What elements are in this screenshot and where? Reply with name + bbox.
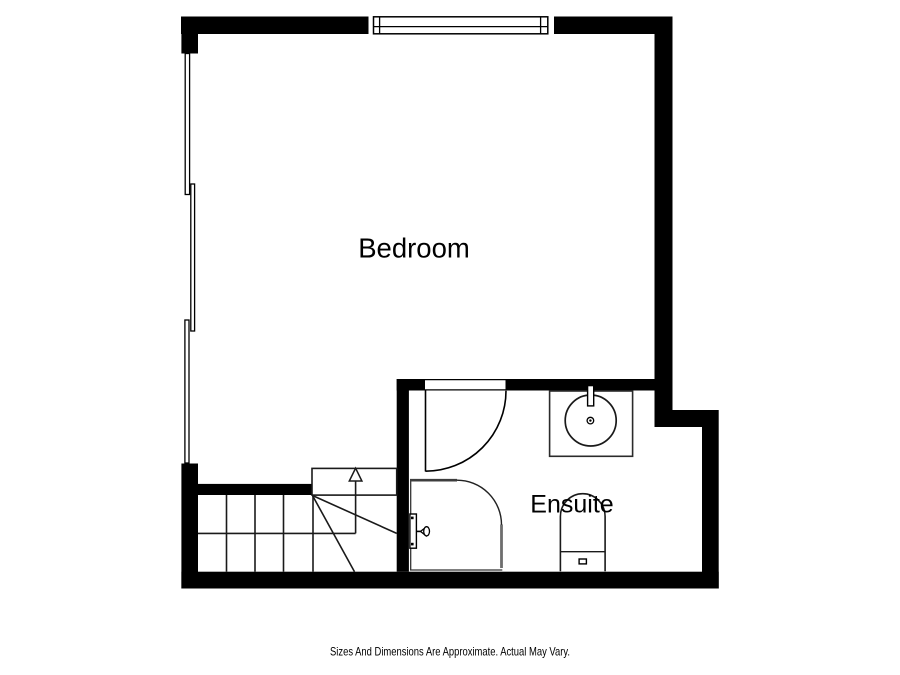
svg-text:Bedroom: Bedroom [358, 233, 470, 264]
svg-text:Sizes And Dimensions Are Appro: Sizes And Dimensions Are Approximate. Ac… [330, 645, 570, 659]
svg-text:Ensuite: Ensuite [530, 491, 613, 519]
